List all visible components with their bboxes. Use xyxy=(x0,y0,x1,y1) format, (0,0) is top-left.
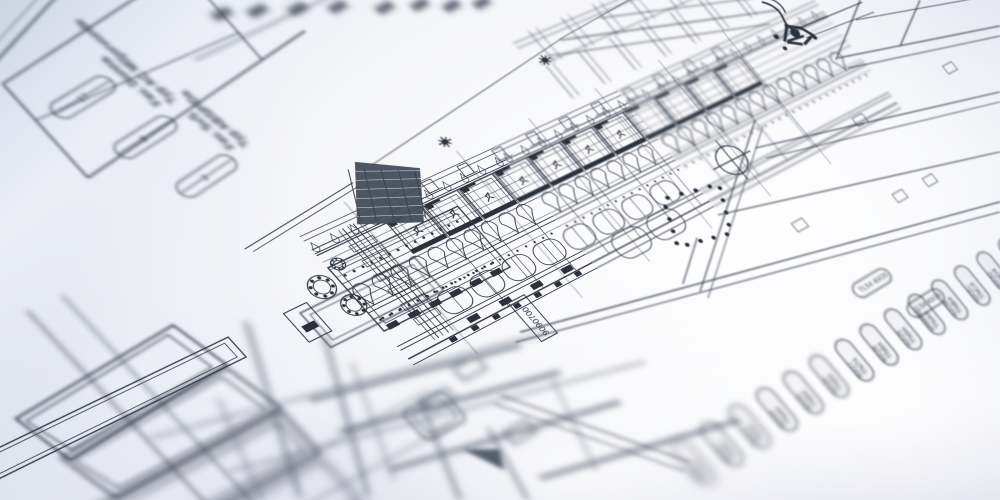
svg-text:TL54 40/20: TL54 40/20 xyxy=(857,271,890,294)
svg-text:Typ AC Miljorvonde: Typ AC Miljorvonde xyxy=(71,16,180,105)
